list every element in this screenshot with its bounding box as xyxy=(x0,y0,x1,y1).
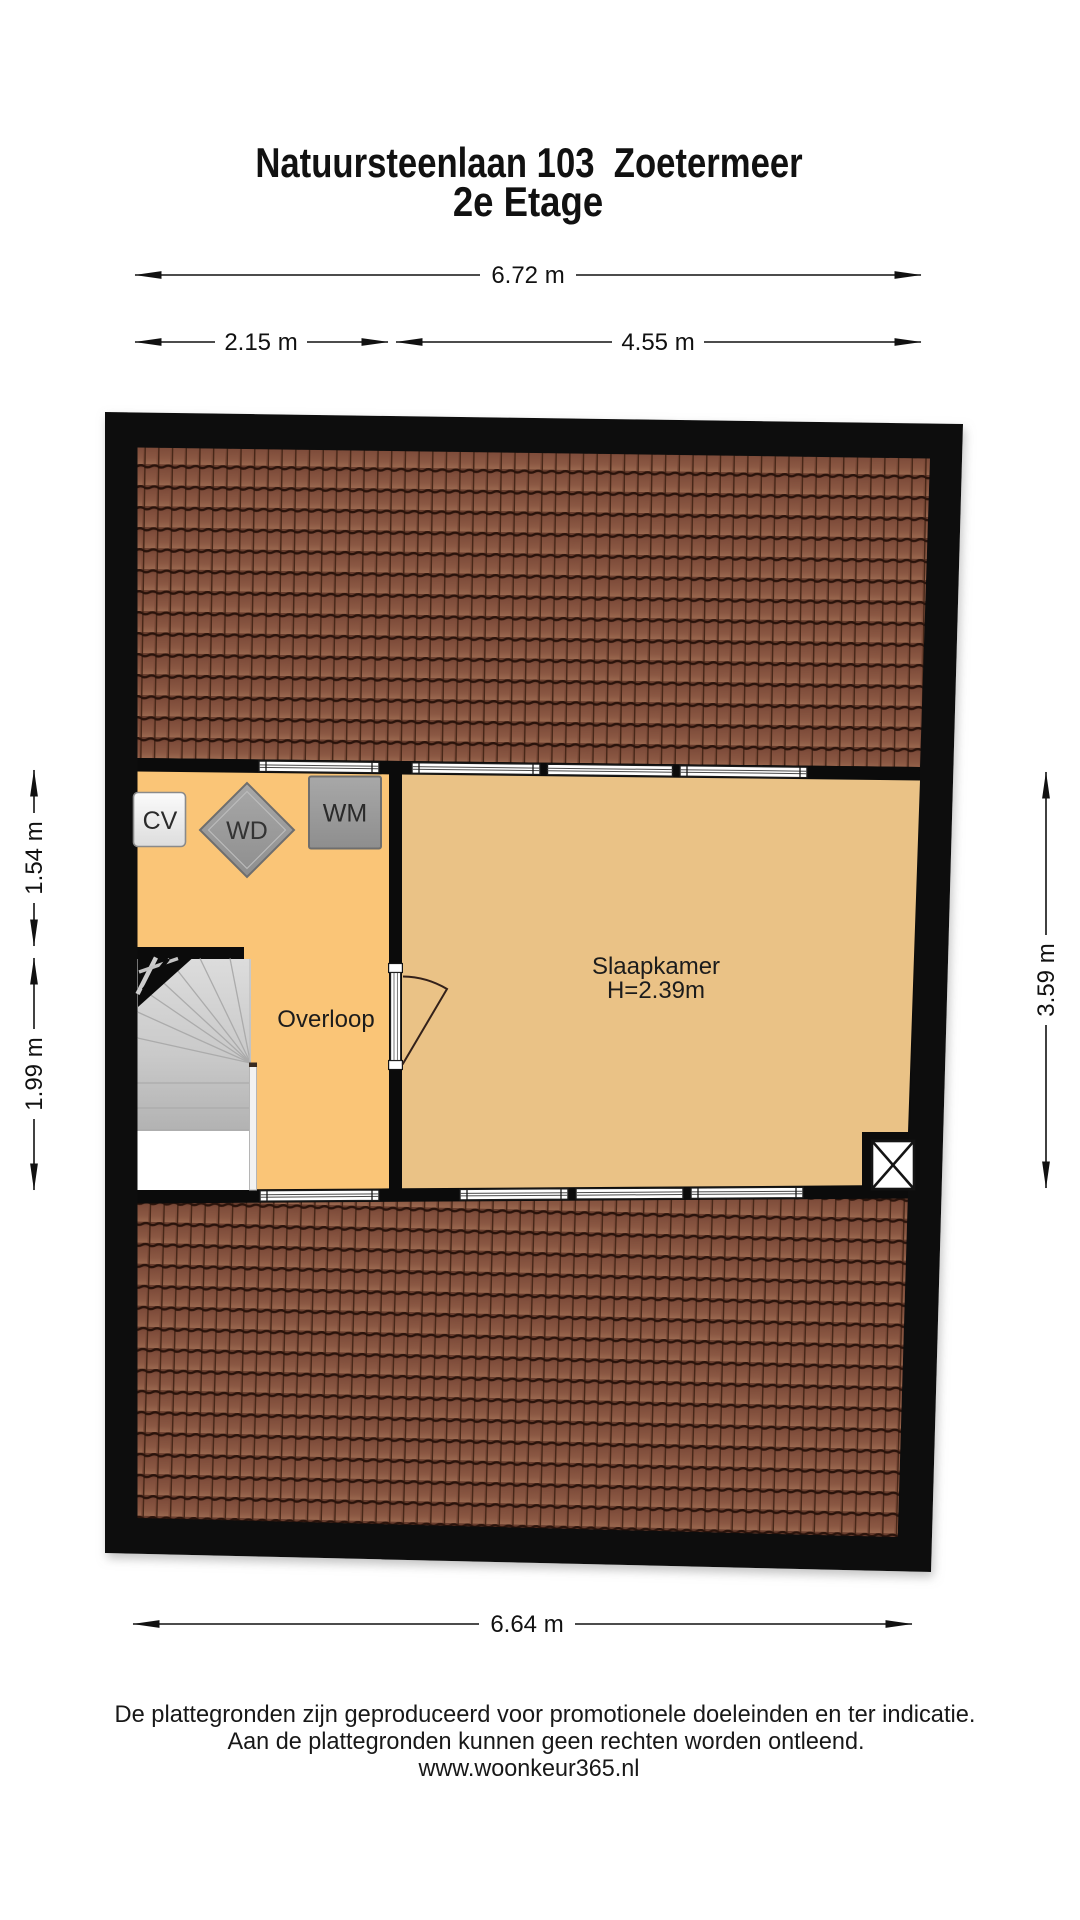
svg-text:3.59 m: 3.59 m xyxy=(1033,943,1060,1016)
svg-text:De plattegronden zijn geproduc: De plattegronden zijn geproduceerd voor … xyxy=(115,1701,976,1728)
svg-text:WD: WD xyxy=(226,817,268,845)
svg-text:H=2.39m: H=2.39m xyxy=(607,977,705,1004)
svg-text:Slaapkamer: Slaapkamer xyxy=(592,953,720,980)
svg-text:1.54 m: 1.54 m xyxy=(21,821,48,894)
svg-text:Overloop: Overloop xyxy=(277,1006,374,1033)
svg-text:2e Etage: 2e Etage xyxy=(453,179,603,226)
svg-text:6.64 m: 6.64 m xyxy=(490,1611,563,1638)
svg-text:4.55 m: 4.55 m xyxy=(621,329,694,356)
svg-text:www.woonkeur365.nl: www.woonkeur365.nl xyxy=(418,1755,640,1782)
svg-text:CV: CV xyxy=(143,807,178,835)
svg-text:WM: WM xyxy=(323,800,367,828)
svg-text:2.15 m: 2.15 m xyxy=(224,329,297,356)
svg-text:6.72 m: 6.72 m xyxy=(491,262,564,289)
svg-text:Aan de plattegronden kunnen ge: Aan de plattegronden kunnen geen rechten… xyxy=(228,1728,865,1755)
svg-text:1.99 m: 1.99 m xyxy=(21,1037,48,1110)
